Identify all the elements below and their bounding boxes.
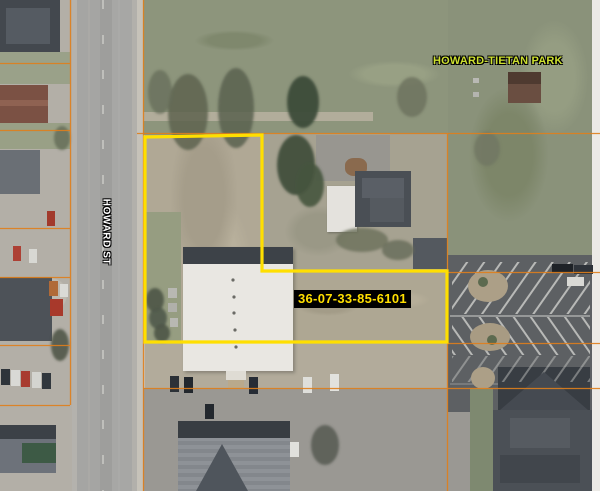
- aerial-map-canvas[interactable]: HOWARD-TIETAN PARK HOWARD ST 36-07-33-85…: [0, 0, 600, 491]
- house-roof-facet: [6, 8, 50, 44]
- building-roof-band: [178, 421, 290, 438]
- commercial-roof-band: [0, 425, 56, 439]
- house-roof-facet: [362, 178, 404, 198]
- building-roof-facet: [510, 418, 570, 448]
- park-path: [143, 112, 373, 121]
- building-complex-wing: [498, 367, 590, 412]
- rooftop-unit: [168, 288, 177, 298]
- garage-white-roof: [327, 186, 357, 232]
- house-roof: [0, 150, 40, 194]
- commercial-roof: [0, 277, 52, 341]
- lawn-patch: [0, 52, 70, 84]
- subject-building-dark-band: [183, 247, 293, 264]
- image-edge-strip: [592, 0, 600, 491]
- park-name-label: HOWARD-TIETAN PARK: [433, 55, 563, 67]
- dumpster: [22, 443, 56, 463]
- rooftop-unit: [168, 303, 177, 312]
- red-container: [50, 299, 63, 316]
- subject-building-extension: [228, 380, 244, 389]
- picnic-table: [473, 78, 479, 83]
- lawn-patch: [0, 123, 70, 149]
- subject-building-white-roof: [183, 247, 293, 371]
- house-roof-ridge: [0, 100, 48, 106]
- building-roof-facet: [500, 455, 580, 483]
- parcel-id-label: 36-07-33-85-6101: [294, 290, 411, 308]
- rooftop-unit: [170, 318, 178, 327]
- outbuilding: [413, 238, 447, 269]
- picnic-table: [473, 92, 479, 97]
- park-grass-right: [448, 0, 600, 258]
- street-name-label: HOWARD ST: [101, 199, 112, 266]
- grass-strip: [470, 388, 493, 491]
- house-roof-facet: [370, 198, 404, 222]
- subject-building-extension: [226, 371, 246, 380]
- park-shelter-roof: [508, 72, 541, 84]
